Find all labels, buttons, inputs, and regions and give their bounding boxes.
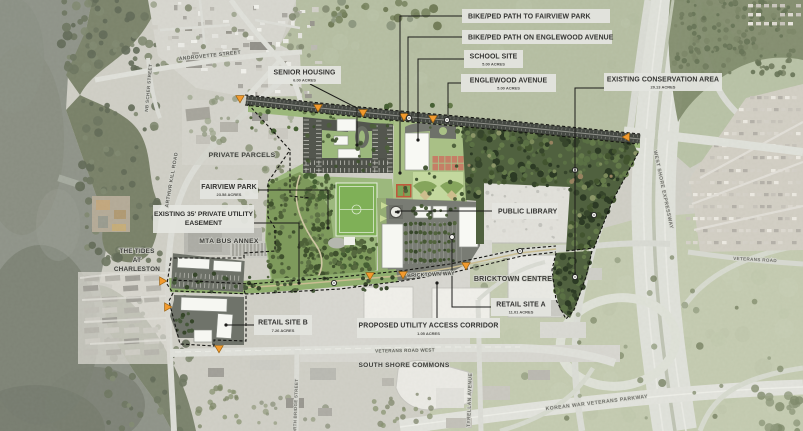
svg-text:AT: AT	[133, 257, 141, 264]
svg-text:BIKE/PED PATH TO FAIRVIEW PARK: BIKE/PED PATH TO FAIRVIEW PARK	[468, 14, 591, 21]
svg-text:7.26 ACRES: 7.26 ACRES	[272, 328, 295, 333]
svg-text:SENIOR HOUSING: SENIOR HOUSING	[274, 69, 336, 76]
svg-text:1.05 ACRES: 1.05 ACRES	[417, 331, 440, 336]
svg-text:VETERANS ROAD WEST: VETERANS ROAD WEST	[375, 347, 435, 353]
svg-text:BIKE/PED PATH ON ENGLEWOOD AVE: BIKE/PED PATH ON ENGLEWOOD AVENUE	[468, 35, 614, 42]
svg-text:EASEMENT: EASEMENT	[185, 220, 223, 227]
svg-text:23.58 ACRES: 23.58 ACRES	[217, 192, 242, 197]
svg-text:SOUTH SHORE COMMONS: SOUTH SHORE COMMONS	[358, 362, 449, 369]
svg-text:PUBLIC LIBRARY: PUBLIC LIBRARY	[498, 209, 558, 216]
svg-text:FAIRVIEW PARK: FAIRVIEW PARK	[201, 184, 256, 191]
svg-text:20.13 ACRES: 20.13 ACRES	[651, 84, 676, 89]
svg-text:BRICKTOWN CENTRE: BRICKTOWN CENTRE	[474, 275, 552, 283]
svg-text:EXISTING 35' PRIVATE UTILITY: EXISTING 35' PRIVATE UTILITY	[154, 211, 254, 218]
svg-text:ENGLEWOOD AVENUE: ENGLEWOOD AVENUE	[470, 77, 548, 84]
svg-text:RETAIL SITE A: RETAIL SITE A	[496, 301, 545, 308]
svg-text:11.01 ACRES: 11.01 ACRES	[509, 309, 534, 314]
svg-text:PROPOSED UTILITY ACCESS CORRID: PROPOSED UTILITY ACCESS CORRIDOR	[359, 322, 499, 329]
svg-text:RETAIL SITE B: RETAIL SITE B	[258, 319, 308, 326]
svg-text:PRIVATE PARCELS: PRIVATE PARCELS	[209, 152, 276, 159]
svg-text:5.00 ACRES: 5.00 ACRES	[482, 61, 505, 66]
svg-text:THE TIDES: THE TIDES	[119, 248, 155, 255]
svg-text:CHARLESTON: CHARLESTON	[114, 266, 160, 273]
svg-text:5.00 ACRES: 5.00 ACRES	[497, 85, 520, 90]
svg-text:MTA BUS ANNEX: MTA BUS ANNEX	[199, 238, 259, 245]
svg-text:6.00 ACRES: 6.00 ACRES	[293, 77, 316, 82]
svg-text:EXISTING CONSERVATION AREA: EXISTING CONSERVATION AREA	[607, 76, 719, 83]
svg-text:SCHOOL SITE: SCHOOL SITE	[470, 53, 518, 60]
